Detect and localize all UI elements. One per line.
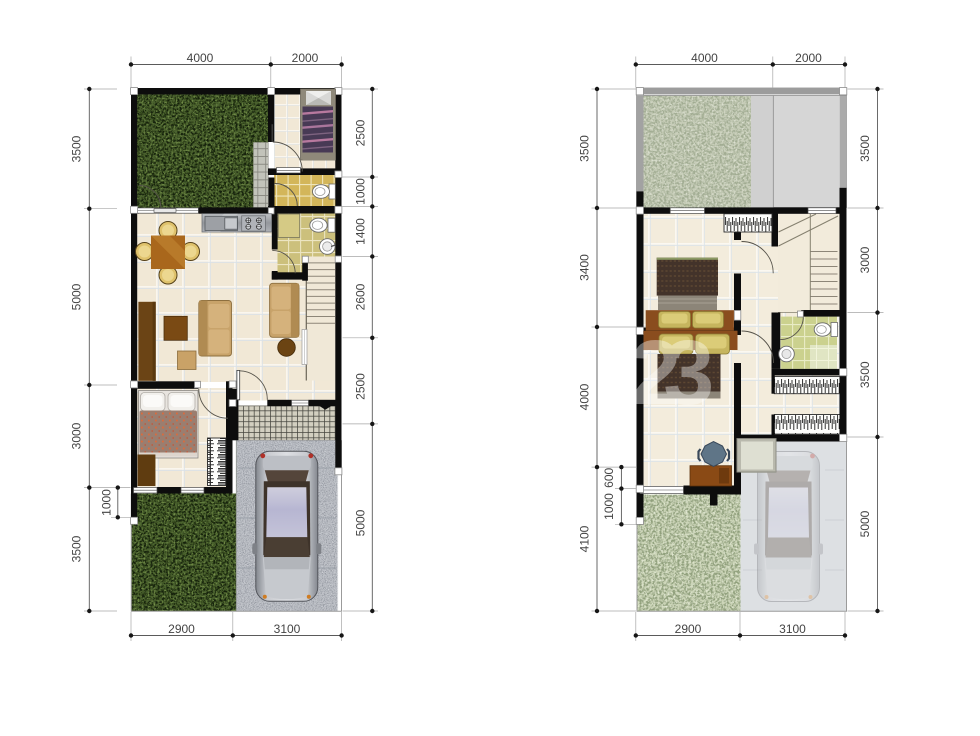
svg-text:3500: 3500 [70, 535, 84, 562]
svg-text:3400: 3400 [578, 254, 592, 281]
svg-text:5000: 5000 [858, 510, 872, 537]
svg-text:5000: 5000 [354, 509, 368, 536]
svg-text:2900: 2900 [675, 622, 702, 636]
svg-text:3500: 3500 [578, 135, 592, 162]
svg-text:4100: 4100 [578, 525, 592, 552]
svg-text:5000: 5000 [70, 283, 84, 310]
svg-text:2900: 2900 [168, 622, 195, 636]
svg-text:4000: 4000 [578, 383, 592, 410]
svg-text:2500: 2500 [354, 373, 368, 400]
svg-text:1000: 1000 [354, 178, 368, 205]
svg-text:3500: 3500 [858, 361, 872, 388]
svg-text:600: 600 [602, 467, 616, 487]
svg-text:1000: 1000 [602, 493, 616, 520]
svg-text:2500: 2500 [354, 119, 368, 146]
svg-text:3500: 3500 [70, 135, 84, 162]
svg-text:3100: 3100 [274, 622, 301, 636]
svg-text:3000: 3000 [70, 422, 84, 449]
svg-text:3100: 3100 [779, 622, 806, 636]
svg-text:2000: 2000 [292, 51, 319, 65]
svg-text:2600: 2600 [354, 283, 368, 310]
svg-text:1400: 1400 [354, 218, 368, 245]
svg-text:1000: 1000 [100, 489, 114, 516]
svg-text:3000: 3000 [858, 246, 872, 273]
svg-text:3500: 3500 [858, 135, 872, 162]
svg-text:2000: 2000 [795, 51, 822, 65]
svg-text:4000: 4000 [691, 51, 718, 65]
svg-text:4000: 4000 [187, 51, 214, 65]
